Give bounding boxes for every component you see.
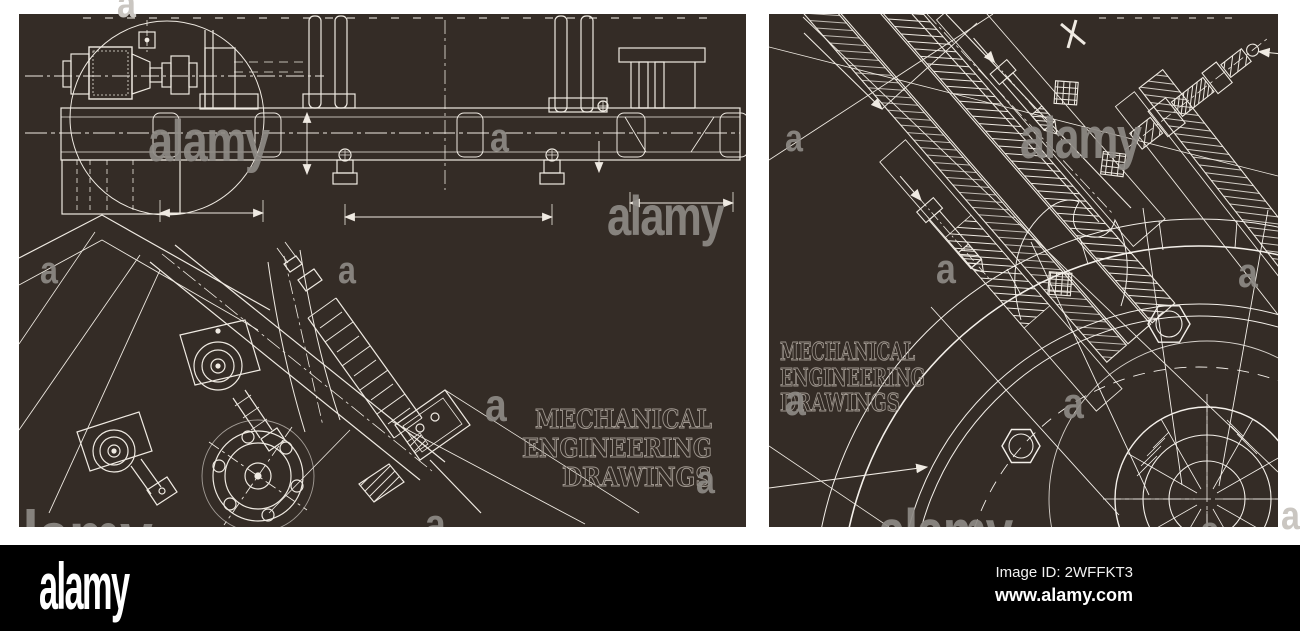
title-line: MECHANICAL xyxy=(535,405,712,435)
watermark-letter: a xyxy=(1200,510,1220,527)
title-line: DRAWINGS xyxy=(562,463,712,493)
watermark-letter: a xyxy=(1063,382,1084,426)
watermark-letter: a xyxy=(785,379,806,423)
alamy-watermark: alamy xyxy=(148,113,268,171)
blueprint-panel-left: MECHANICAL ENGINEERING DRAWINGS alamy al… xyxy=(19,14,746,527)
watermark-letter: a xyxy=(40,252,58,290)
bolted-section-drawing xyxy=(769,14,1278,527)
panel-title-left: MECHANICAL ENGINEERING DRAWINGS xyxy=(522,405,712,493)
image-id-text: Image ID: 2WFFKT3 xyxy=(995,564,1133,582)
engineering-drawing-right: MECHANICAL ENGINEERING DRAWINGS xyxy=(769,14,1278,527)
title-line: ENGINEERING xyxy=(522,434,712,464)
alamy-watermark: alamy xyxy=(607,188,723,244)
watermark-letter: a xyxy=(1238,252,1258,294)
alamy-logo: alamy xyxy=(39,553,129,619)
watermark-letter: a xyxy=(338,252,356,290)
footer-meta: Image ID: 2WFFKT3 www.alamy.com xyxy=(995,564,1133,607)
watermark-letter: a xyxy=(1281,496,1300,536)
alamy-watermark: alamy xyxy=(1020,110,1140,168)
watermark-letter: a xyxy=(425,503,446,527)
title-line: MECHANICAL xyxy=(780,337,915,366)
stock-photo-preview: MECHANICAL ENGINEERING DRAWINGS alamy al… xyxy=(0,0,1300,631)
engineering-drawing-left: MECHANICAL ENGINEERING DRAWINGS xyxy=(19,14,746,527)
blueprint-panel-right: MECHANICAL ENGINEERING DRAWINGS alamy al… xyxy=(769,14,1278,527)
watermark-letter: a xyxy=(117,0,136,24)
watermark-letter: a xyxy=(696,460,715,500)
alamy-watermark: alamy xyxy=(878,500,1012,527)
watermark-letter: a xyxy=(490,118,509,158)
website-text: www.alamy.com xyxy=(995,585,1133,607)
alamy-watermark: alamy xyxy=(19,501,151,527)
watermark-letter: a xyxy=(785,120,803,158)
valve-assembly-drawing xyxy=(19,215,639,527)
watermark-letter: a xyxy=(485,382,507,428)
watermark-letter: a xyxy=(936,248,956,290)
